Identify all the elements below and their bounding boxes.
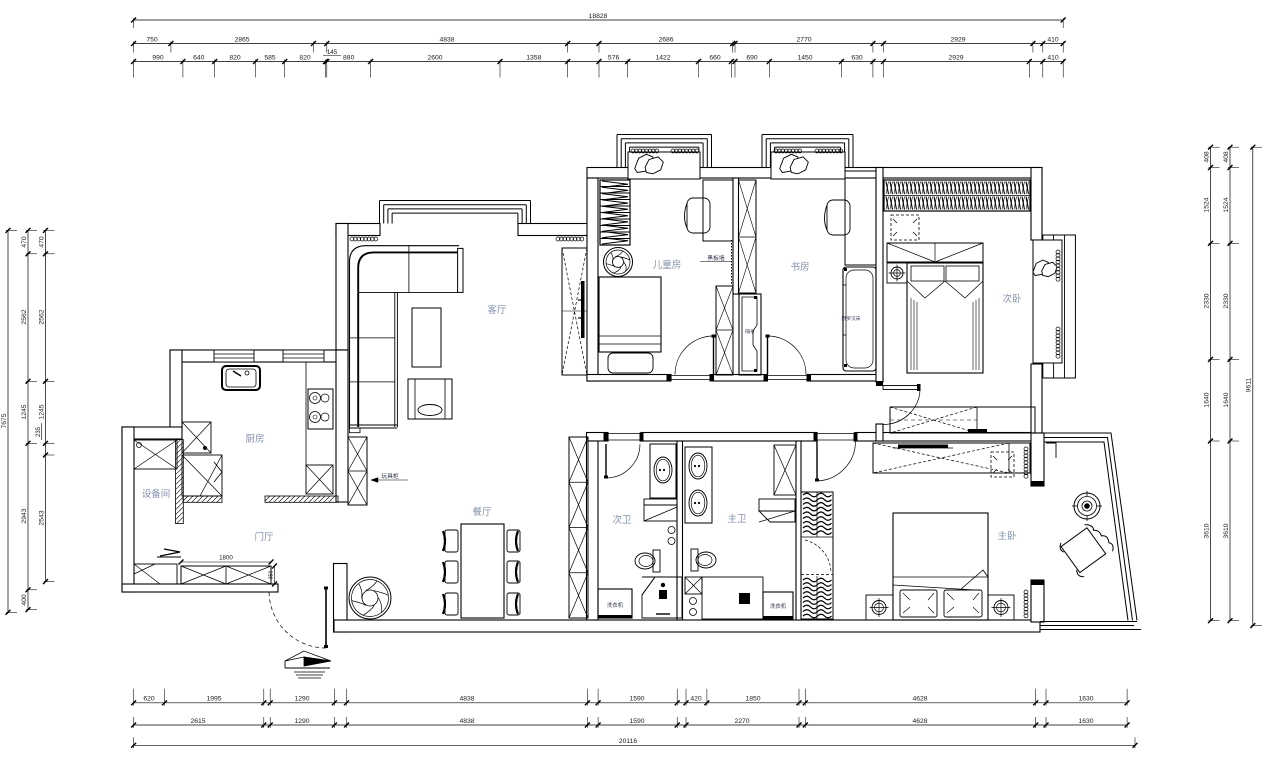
svg-text:576: 576 — [608, 54, 620, 61]
svg-text:洗衣机: 洗衣机 — [607, 601, 624, 609]
svg-text:隔条: 隔条 — [745, 328, 755, 335]
svg-text:1590: 1590 — [629, 718, 644, 725]
svg-text:原罗汉床: 原罗汉床 — [841, 315, 860, 322]
svg-text:1290: 1290 — [294, 718, 309, 725]
svg-text:1524: 1524 — [1203, 197, 1210, 212]
svg-text:2330: 2330 — [1203, 293, 1210, 308]
svg-text:主卧: 主卧 — [997, 530, 1017, 542]
svg-text:1850: 1850 — [745, 696, 760, 703]
svg-text:235: 235 — [36, 426, 42, 437]
svg-text:2615: 2615 — [190, 718, 205, 725]
svg-text:3610: 3610 — [1203, 523, 1210, 538]
svg-text:750: 750 — [146, 36, 158, 43]
svg-text:厨房: 厨房 — [245, 433, 264, 445]
svg-text:2562: 2562 — [38, 309, 45, 324]
svg-text:1245: 1245 — [38, 404, 45, 419]
svg-text:410: 410 — [1047, 54, 1059, 61]
svg-text:1422: 1422 — [655, 54, 670, 61]
svg-text:820: 820 — [229, 54, 241, 61]
svg-text:820: 820 — [299, 54, 311, 61]
svg-text:2929: 2929 — [950, 36, 965, 43]
svg-text:2270: 2270 — [734, 718, 749, 725]
svg-text:2543: 2543 — [38, 510, 45, 525]
svg-text:4838: 4838 — [459, 718, 474, 725]
svg-text:350: 350 — [269, 571, 275, 580]
svg-text:1358: 1358 — [526, 54, 541, 61]
svg-text:420: 420 — [690, 696, 702, 703]
svg-text:1630: 1630 — [1078, 718, 1093, 725]
svg-text:408: 408 — [1203, 151, 1210, 163]
svg-text:4628: 4628 — [912, 696, 927, 703]
svg-text:主卫: 主卫 — [727, 513, 747, 525]
svg-text:1245: 1245 — [21, 404, 28, 419]
svg-text:儿童房: 儿童房 — [653, 259, 682, 271]
svg-text:书房: 书房 — [790, 261, 809, 273]
svg-text:400: 400 — [21, 594, 28, 606]
svg-text:设备间: 设备间 — [142, 488, 171, 500]
svg-text:2929: 2929 — [948, 54, 963, 61]
svg-text:1590: 1590 — [629, 696, 644, 703]
svg-text:餐厅: 餐厅 — [472, 506, 492, 518]
svg-text:630: 630 — [851, 54, 863, 61]
svg-text:次卧: 次卧 — [1002, 293, 1022, 305]
svg-text:次卫: 次卫 — [612, 514, 632, 526]
svg-text:2562: 2562 — [21, 309, 28, 324]
svg-text:7675: 7675 — [1, 413, 8, 428]
svg-text:1800: 1800 — [219, 555, 233, 562]
svg-text:1640: 1640 — [1223, 392, 1230, 407]
svg-text:4628: 4628 — [912, 718, 927, 725]
svg-text:4838: 4838 — [439, 36, 454, 43]
svg-text:2330: 2330 — [1223, 293, 1230, 308]
svg-text:585: 585 — [264, 54, 276, 61]
svg-text:门厅: 门厅 — [254, 531, 274, 543]
svg-text:470: 470 — [38, 236, 45, 248]
svg-text:洗衣机: 洗衣机 — [770, 602, 787, 610]
svg-text:客厅: 客厅 — [487, 304, 507, 316]
svg-text:20116: 20116 — [619, 738, 638, 745]
svg-text:1640: 1640 — [1203, 392, 1210, 407]
svg-text:990: 990 — [152, 54, 164, 61]
svg-text:408: 408 — [1223, 151, 1230, 163]
svg-text:2770: 2770 — [796, 36, 811, 43]
svg-text:2865: 2865 — [234, 36, 249, 43]
svg-text:145: 145 — [327, 49, 338, 56]
svg-text:880: 880 — [343, 54, 355, 61]
svg-text:620: 620 — [143, 696, 155, 703]
svg-text:18828: 18828 — [589, 13, 608, 20]
svg-text:1630: 1630 — [1078, 696, 1093, 703]
svg-text:9611: 9611 — [1246, 377, 1253, 392]
svg-text:3610: 3610 — [1223, 523, 1230, 538]
svg-text:4838: 4838 — [459, 696, 474, 703]
svg-text:410: 410 — [1047, 36, 1059, 43]
svg-text:470: 470 — [21, 236, 28, 248]
svg-text:玩具柜: 玩具柜 — [381, 472, 399, 480]
svg-text:1290: 1290 — [294, 696, 309, 703]
svg-text:2600: 2600 — [427, 54, 442, 61]
svg-text:2686: 2686 — [658, 36, 673, 43]
svg-text:1524: 1524 — [1223, 197, 1230, 212]
svg-text:640: 640 — [193, 54, 205, 61]
svg-text:660: 660 — [709, 54, 721, 61]
svg-text:1450: 1450 — [797, 54, 812, 61]
svg-text:1995: 1995 — [206, 696, 221, 703]
svg-text:黑板墙: 黑板墙 — [707, 254, 725, 262]
svg-text:690: 690 — [746, 54, 758, 61]
svg-text:2943: 2943 — [21, 508, 28, 523]
